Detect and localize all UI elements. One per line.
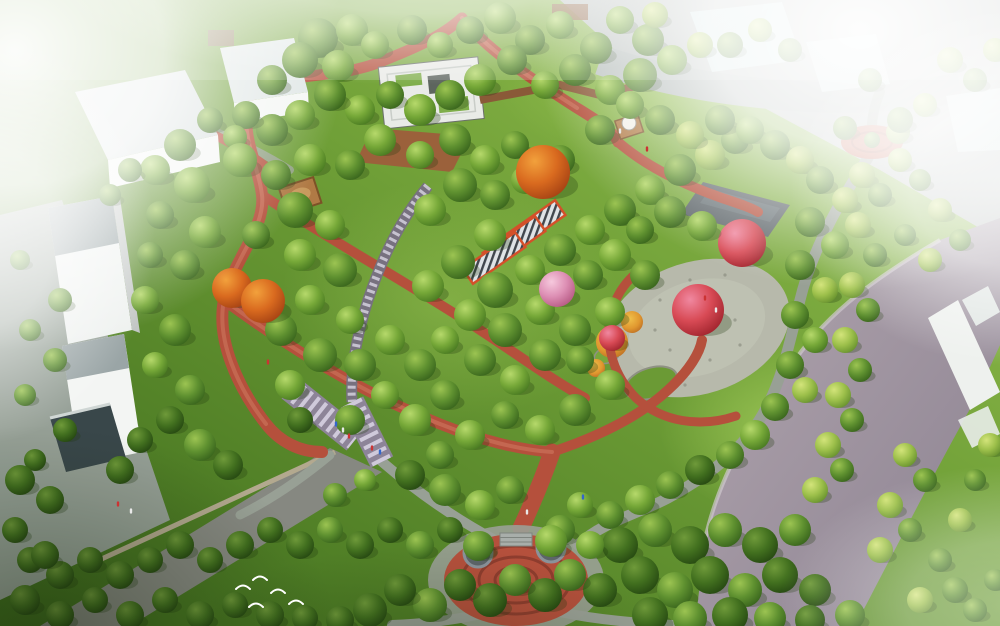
person	[619, 128, 621, 133]
aerial-park-rendering	[0, 0, 1000, 626]
gravel-dot	[738, 343, 741, 346]
entrance-steps	[500, 533, 532, 546]
gravel-dot	[658, 298, 661, 301]
gravel-dot	[683, 383, 686, 386]
park-rendering-stage	[0, 0, 1000, 626]
person	[342, 427, 344, 432]
gravel-dot	[708, 358, 711, 361]
person	[348, 433, 350, 438]
person	[526, 509, 528, 514]
person	[371, 445, 373, 450]
person	[335, 421, 337, 426]
person	[267, 359, 269, 364]
person	[646, 146, 648, 151]
person	[704, 295, 706, 300]
person	[130, 508, 132, 513]
person	[379, 449, 381, 454]
gravel-dot	[688, 278, 691, 281]
gravel-dot	[733, 318, 736, 321]
gravel-dot	[723, 273, 726, 276]
person	[117, 501, 119, 506]
gravel-dot	[668, 348, 671, 351]
person	[582, 494, 584, 499]
gravel-dot	[653, 328, 656, 331]
person	[715, 307, 717, 312]
